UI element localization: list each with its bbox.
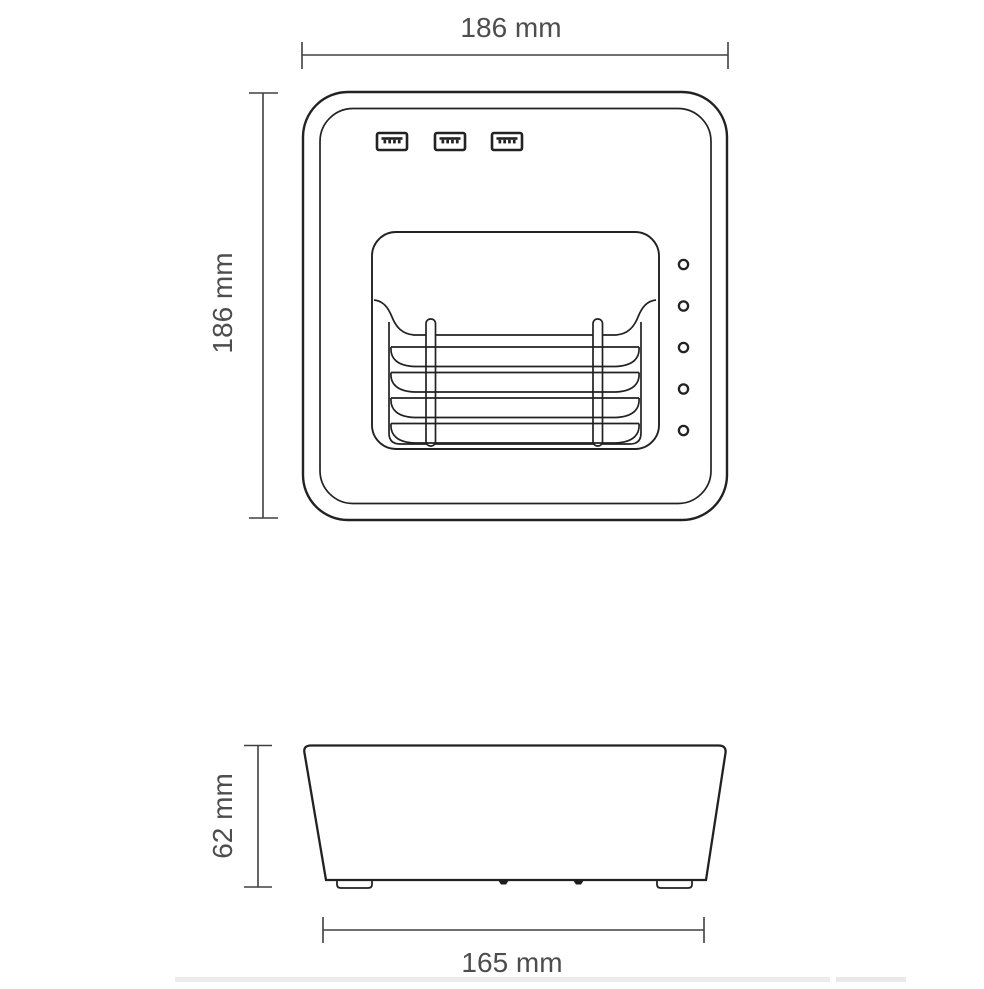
technical-drawing-page: 186 mm 186 mm [0, 0, 984, 984]
device-top-view [303, 92, 727, 520]
dimension-label-bottom-width: 165 mm [461, 947, 562, 978]
usb-port-icon [435, 133, 465, 150]
bottom-bump [498, 880, 509, 885]
dimension-label-left-height: 186 mm [207, 252, 238, 353]
dimension-left-height: 186 mm [207, 93, 278, 518]
dimension-label-front-height: 62 mm [207, 773, 238, 859]
dimension-label-top-width: 186 mm [460, 12, 561, 43]
dimension-bottom-width: 165 mm [323, 917, 704, 978]
recessed-tray-outline [372, 232, 659, 449]
front-view-body [304, 746, 725, 881]
led-indicator-icon [679, 384, 688, 393]
bottom-bump [573, 880, 584, 885]
led-indicator-column [679, 260, 688, 435]
led-indicator-icon [679, 426, 688, 435]
divider-rail-left [426, 319, 436, 446]
led-indicator-icon [679, 260, 688, 269]
dimension-front-height: 62 mm [207, 746, 272, 888]
led-indicator-icon [679, 301, 688, 310]
usb-port-icon [377, 133, 407, 150]
basin-top-wave-line [374, 300, 656, 335]
device-foot-left [337, 880, 372, 888]
dimension-diagram: 186 mm 186 mm [0, 0, 984, 984]
usb-port-row [377, 133, 522, 150]
faded-bottom-artifact [175, 977, 830, 982]
device-front-view [304, 746, 725, 889]
dimension-top-width: 186 mm [302, 12, 728, 69]
led-indicator-icon [679, 343, 688, 352]
device-foot-right [657, 880, 692, 888]
faded-bottom-artifact [836, 977, 906, 982]
divider-rail-right [593, 319, 603, 446]
usb-port-icon [492, 133, 522, 150]
top-view-outer-shell [303, 92, 727, 520]
